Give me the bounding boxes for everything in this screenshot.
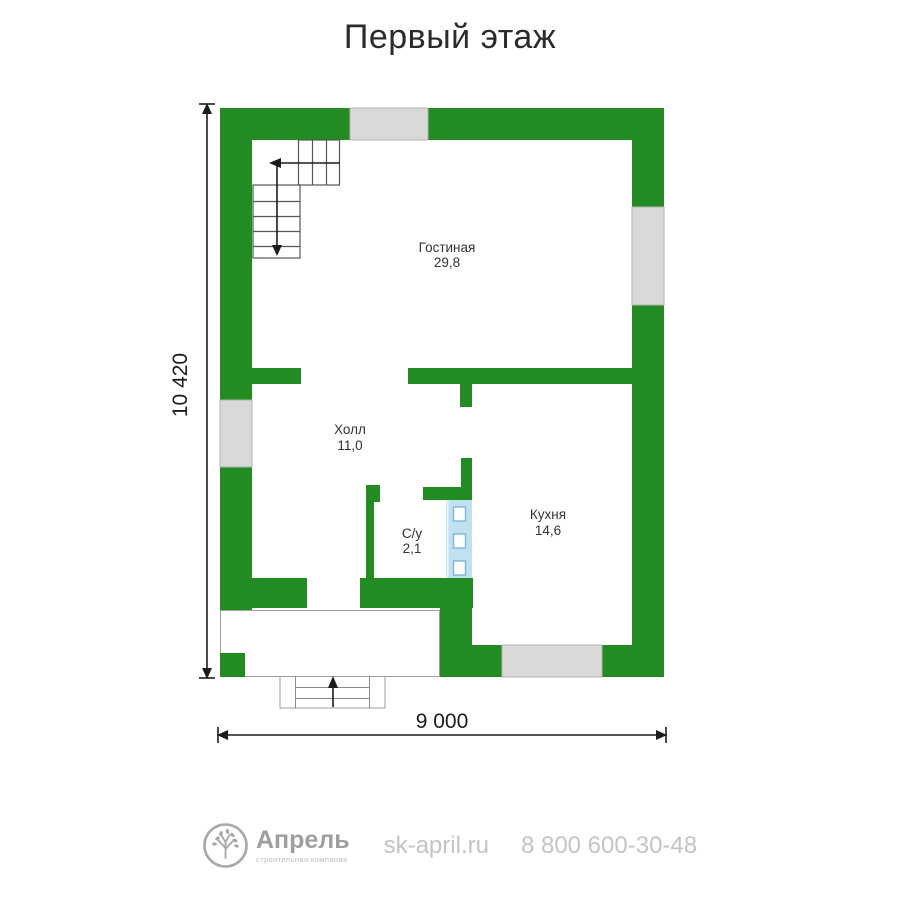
floor-plan: 10 420 9 000 Гостиная 29,8 Холл 11,0 С/у… bbox=[0, 0, 900, 900]
wall-bath-west bbox=[366, 502, 374, 578]
stair-arrowhead-down bbox=[272, 245, 282, 256]
wall-bath-pier bbox=[366, 485, 380, 502]
dim-width-label: 9 000 bbox=[416, 710, 469, 733]
phone-number: 8 800 600-30-48 bbox=[521, 832, 697, 860]
brand-tagline: строительная компания bbox=[256, 855, 350, 864]
brand-name: Апрель bbox=[256, 827, 350, 853]
wall-left bbox=[220, 108, 252, 610]
room-label-hall-name: Холл bbox=[334, 422, 366, 437]
wall-hall-west-stub bbox=[252, 368, 301, 384]
porch-outline bbox=[221, 611, 440, 677]
window-left bbox=[220, 400, 252, 467]
room-label-hall-area: 11,0 bbox=[337, 438, 362, 453]
wall-top bbox=[220, 108, 664, 140]
wall-hall-south-west bbox=[252, 578, 307, 608]
glass-block bbox=[454, 507, 466, 521]
staircase bbox=[253, 140, 340, 258]
wall-livingroom-south bbox=[408, 368, 632, 384]
glass-block bbox=[454, 534, 466, 548]
stair-arrowhead-left bbox=[269, 158, 281, 168]
room-label-kitchen-name: Кухня bbox=[530, 507, 566, 522]
window-top bbox=[350, 108, 428, 140]
wall-kitchen-west-stub bbox=[461, 458, 472, 488]
room-label-living-name: Гостиная bbox=[419, 240, 476, 255]
room-label-kitchen-area: 14,6 bbox=[535, 523, 561, 538]
dim-height-label: 10 420 bbox=[169, 353, 192, 417]
page: Первый этаж bbox=[0, 0, 900, 900]
interior-walls bbox=[252, 368, 632, 645]
entrance-steps bbox=[280, 676, 385, 708]
wall-kitchen-north-stub bbox=[460, 384, 472, 407]
bath-glass-partition bbox=[446, 500, 472, 578]
wall-kitchen-west-connector bbox=[440, 608, 472, 645]
glass-block bbox=[454, 561, 466, 575]
dimension-horizontal: 9 000 bbox=[217, 710, 667, 743]
wall-bath-north bbox=[423, 487, 472, 500]
room-label-living-area: 29,8 bbox=[434, 255, 460, 270]
wall-porch-pier bbox=[220, 653, 245, 677]
wall-right bbox=[632, 108, 664, 677]
wall-hall-south-east bbox=[360, 578, 473, 608]
website-link[interactable]: sk-april.ru bbox=[384, 832, 489, 860]
footer: Апрель строительная компания sk-april.ru… bbox=[202, 822, 697, 869]
room-label-bath-name: С/у bbox=[402, 526, 423, 541]
dimension-vertical: 10 420 bbox=[169, 103, 215, 679]
room-label-bath-area: 2,1 bbox=[403, 541, 422, 556]
window-bottom bbox=[502, 645, 602, 677]
window-right bbox=[632, 207, 664, 305]
tree-icon bbox=[202, 822, 249, 869]
stair-direction-arrow bbox=[269, 158, 340, 256]
brand-block: Апрель строительная компания bbox=[256, 827, 350, 863]
